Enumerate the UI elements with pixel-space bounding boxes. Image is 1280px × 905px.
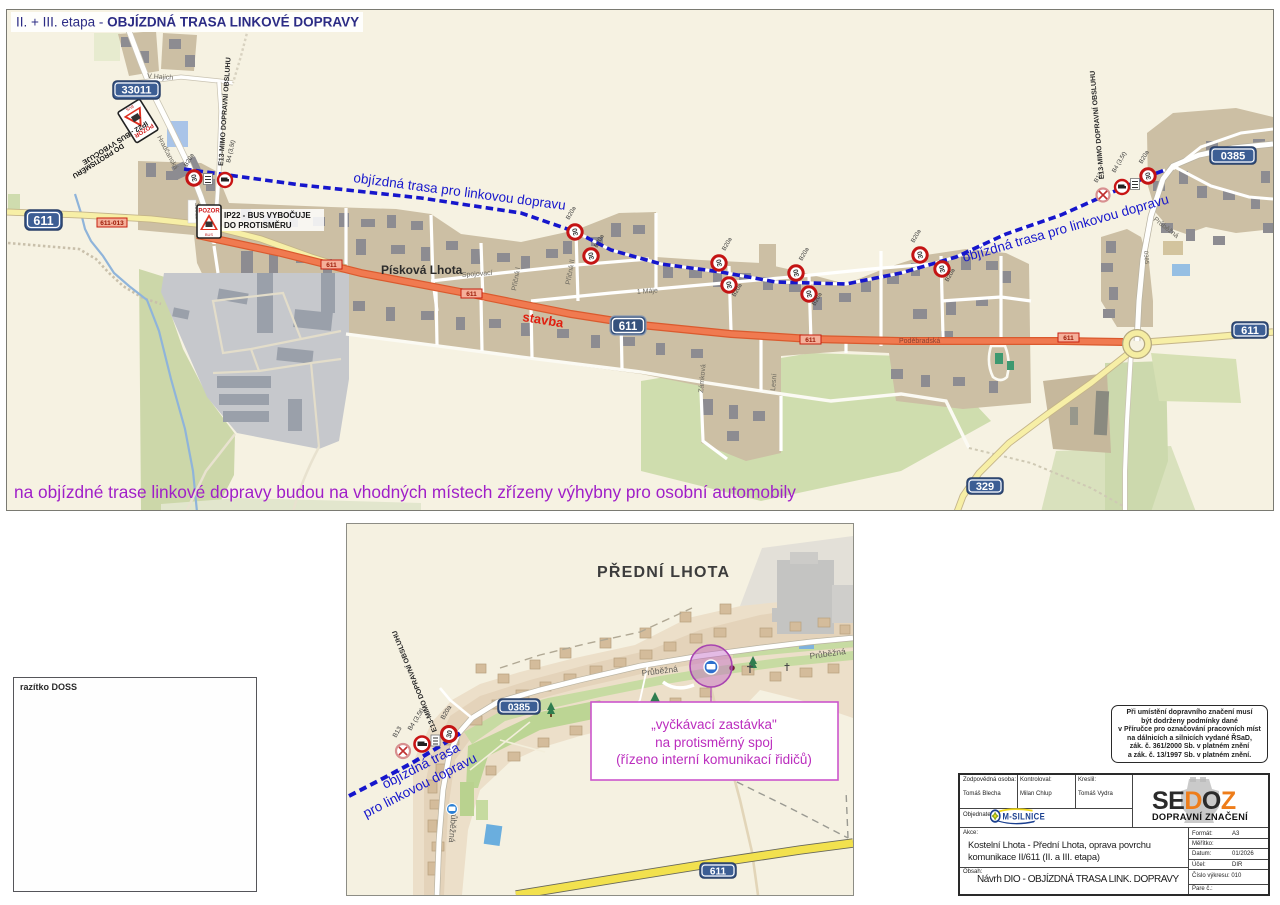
svg-text:0385: 0385 [508, 703, 531, 714]
svg-text:(řízeno interní komunikací řid: (řízeno interní komunikací řidičů) [616, 752, 812, 767]
svg-text:611: 611 [33, 214, 53, 228]
svg-text:329: 329 [976, 481, 994, 493]
svg-text:611: 611 [805, 337, 816, 344]
svg-text:611: 611 [1241, 325, 1259, 337]
svg-text:M-SILNICE: M-SILNICE [1002, 811, 1045, 822]
svg-text:33011: 33011 [122, 85, 152, 97]
svg-text:611: 611 [326, 262, 337, 269]
svg-text:BUS: BUS [205, 232, 214, 237]
svg-text:611: 611 [1063, 335, 1074, 342]
svg-text:na protisměrný spoj: na protisměrný spoj [655, 735, 773, 750]
svg-text:„vyčkávací zastávka": „vyčkávací zastávka" [651, 717, 777, 732]
svg-text:IP22 - BUS VYBOČUJE: IP22 - BUS VYBOČUJE [224, 211, 311, 220]
svg-text:II. + III. etapa - OBJÍZDNÁ TR: II. + III. etapa - OBJÍZDNÁ TRASA LINKOV… [16, 15, 359, 30]
svg-text:611: 611 [710, 867, 727, 878]
svg-text:611: 611 [466, 291, 477, 298]
svg-text:Lesní: Lesní [770, 373, 778, 391]
svg-text:611-013: 611-013 [100, 220, 124, 227]
svg-text:611: 611 [619, 321, 638, 333]
svg-text:na objízdné trase linkové dopr: na objízdné trase linkové dopravy budou … [14, 482, 796, 502]
svg-text:SEDOZ: SEDOZ [1152, 787, 1236, 815]
svg-text:0385: 0385 [1142, 251, 1149, 265]
svg-text:1 Máje: 1 Máje [637, 288, 659, 296]
svg-text:DOPRAVNÍ ZNAČENÍ: DOPRAVNÍ ZNAČENÍ [1152, 811, 1248, 822]
svg-text:POZOR: POZOR [198, 209, 220, 215]
svg-text:DO PROTISMĚRU: DO PROTISMĚRU [224, 221, 292, 230]
svg-text:Písková Lhota: Písková Lhota [381, 263, 463, 277]
svg-text:0385: 0385 [1221, 151, 1245, 163]
svg-text:Poděbradská: Poděbradská [899, 338, 940, 345]
svg-text:PŘEDNÍ LHOTA: PŘEDNÍ LHOTA [597, 562, 730, 581]
